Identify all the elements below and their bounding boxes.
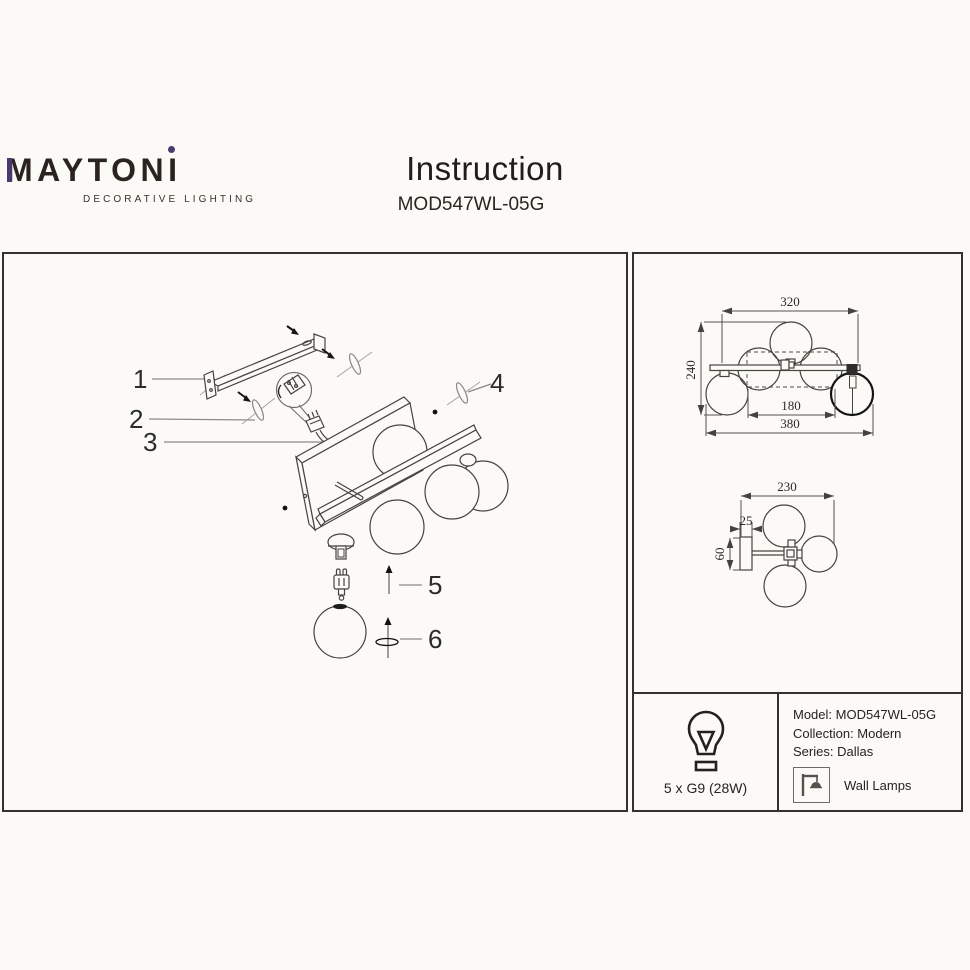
- side-view: [740, 505, 837, 607]
- dim-front-left: 240: [683, 360, 698, 380]
- part-label-4: 4: [490, 368, 504, 398]
- dim-front-bottom: 380: [780, 416, 800, 431]
- spec-collection: Collection: Modern: [793, 727, 961, 740]
- dim-side-top: 230: [777, 479, 797, 494]
- part-label-2: 2: [129, 404, 143, 434]
- category-label: Wall Lamps: [844, 778, 911, 793]
- part-label-5: 5: [428, 570, 442, 600]
- sphere-right: [425, 465, 479, 519]
- dim-front-top: 320: [780, 294, 800, 309]
- wall-lamp-icon: [793, 767, 830, 803]
- sphere-bottom: [370, 500, 424, 554]
- model-number: MOD547WL-05G: [0, 194, 956, 216]
- page-title: Instruction: [0, 150, 970, 188]
- bulb-icon: [684, 708, 728, 776]
- g9-bulb: [334, 569, 349, 600]
- dim-front-mid: 180: [781, 398, 801, 413]
- dim-side-depth: 25: [740, 513, 753, 528]
- lamp-body: [296, 397, 508, 559]
- right-panel: 320 240 180 380: [632, 252, 963, 812]
- part-label-1: 1: [133, 364, 147, 394]
- spec-model: Model: MOD547WL-05G: [793, 708, 961, 721]
- insert-arrows: [376, 565, 398, 658]
- part-label-6: 6: [428, 624, 442, 654]
- dimension-drawings: 320 240 180 380: [634, 254, 961, 690]
- bulb-count-label: 5 x G9 (28W): [664, 780, 747, 796]
- category-row: Wall Lamps: [793, 767, 961, 803]
- glass-sphere: [314, 604, 366, 658]
- dimension-drawings-frame: 320 240 180 380: [634, 254, 961, 694]
- dim-side-height: 60: [712, 548, 727, 561]
- bulb-spec-cell: 5 x G9 (28W): [634, 694, 779, 810]
- part-label-3: 3: [143, 427, 157, 457]
- assembly-diagram: 1 2 3 4 5 6: [4, 254, 626, 810]
- spec-series: Series: Dallas: [793, 745, 961, 758]
- assembly-diagram-frame: 1 2 3 4 5 6: [2, 252, 628, 812]
- mounting-bracket: [200, 334, 325, 399]
- title-block: Instruction MOD547WL-05G: [0, 150, 970, 216]
- info-spec-cell: Model: MOD547WL-05G Collection: Modern S…: [779, 694, 961, 810]
- specs-row: 5 x G9 (28W) Model: MOD547WL-05G Collect…: [634, 694, 961, 810]
